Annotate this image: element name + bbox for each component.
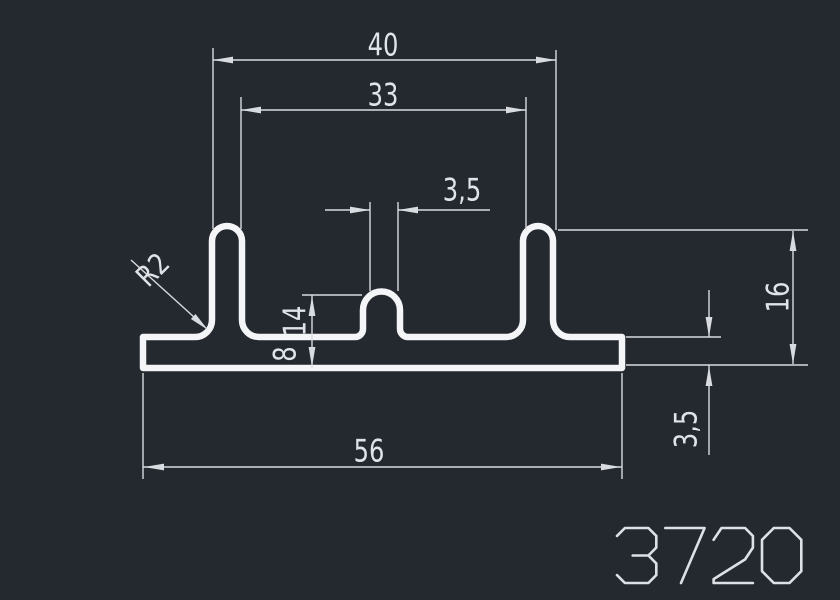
arrowhead — [309, 347, 316, 367]
stick-digit — [665, 528, 704, 583]
dim-bump-width-group — [325, 202, 490, 291]
arrowhead — [350, 207, 370, 214]
arrowhead — [213, 57, 233, 64]
arrowhead — [191, 314, 208, 330]
arrowhead — [506, 107, 526, 114]
drawing-geometry — [0, 0, 840, 600]
dim-label-bump-width: 3,5 — [443, 176, 481, 207]
arrowhead — [144, 464, 164, 471]
stick-digit — [617, 556, 656, 584]
cad-drawing-canvas: 40 33 3,5 R2 14 8 56 16 3,5 — [0, 0, 840, 600]
dim-label-bump-upper: 14 — [281, 306, 312, 337]
arrowhead — [706, 366, 713, 386]
stick-digit — [617, 528, 656, 556]
profile-number-stick-text — [617, 528, 801, 583]
dim-label-16: 16 — [764, 282, 795, 313]
arrowhead — [601, 464, 621, 471]
profile-outline — [143, 226, 622, 368]
dim-label-56: 56 — [354, 437, 385, 468]
dim-label-40: 40 — [368, 31, 399, 62]
dim-label-base-thickness: 3,5 — [672, 410, 703, 448]
arrowhead — [536, 57, 556, 64]
dim-40-group — [213, 48, 556, 230]
arrowhead — [398, 207, 418, 214]
arrowhead — [706, 317, 713, 337]
stick-digit — [762, 528, 801, 583]
dim-label-33: 33 — [368, 81, 399, 112]
stick-digit — [714, 528, 753, 583]
arrowhead — [790, 344, 797, 364]
dim-label-bump-height: 8 — [271, 346, 302, 361]
arrowhead — [790, 231, 797, 251]
arrowhead — [241, 107, 261, 114]
